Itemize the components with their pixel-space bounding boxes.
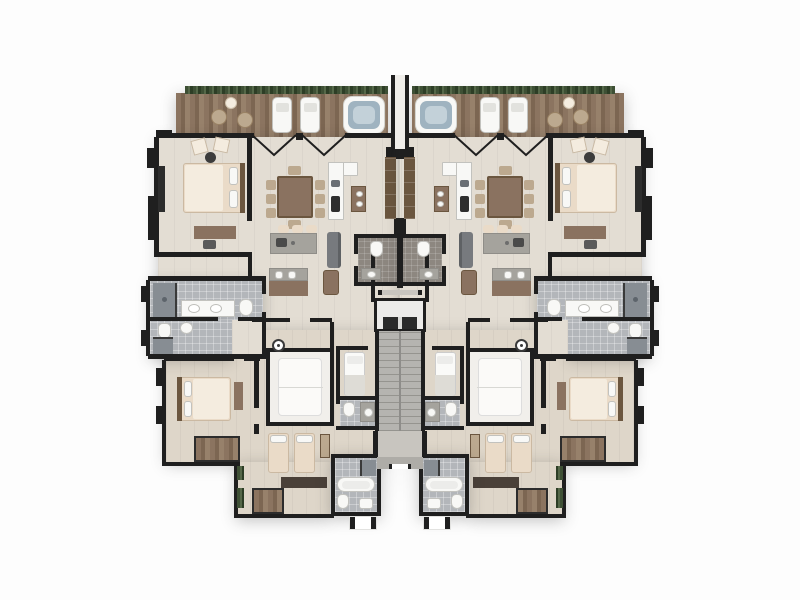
entry-corridor: [377, 457, 423, 469]
stair-divider: [399, 331, 401, 431]
shared-core: [0, 0, 800, 600]
stair-rail: [421, 331, 425, 431]
staircase: [379, 331, 421, 431]
core-wall: [397, 233, 403, 288]
elevator-door: [398, 317, 402, 329]
elevator: [374, 298, 426, 332]
entry-door: [389, 464, 411, 469]
floor-plan-image: [0, 0, 800, 600]
core-ledge: [378, 290, 422, 295]
entry-landing: [373, 431, 427, 457]
divider-shaft: [395, 75, 405, 149]
